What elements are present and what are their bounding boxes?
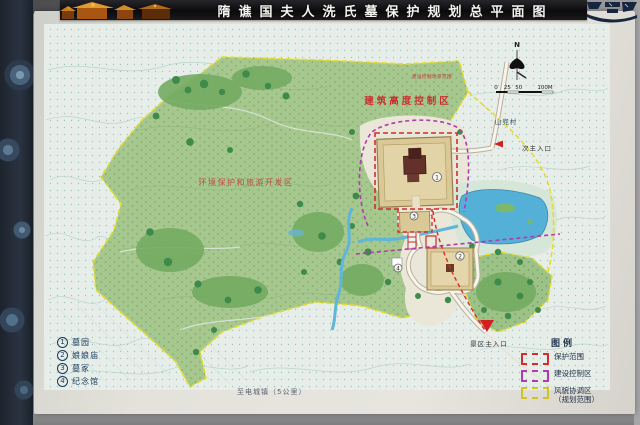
- scale-tick-0: 0: [494, 85, 498, 91]
- legend-item-coordination: 风貌协调区 （规划范围）: [521, 386, 629, 404]
- site-list-item: 4 纪念馆: [57, 376, 99, 387]
- marker-1: 1: [435, 175, 439, 182]
- main-entrance-label: 景区主入口: [470, 339, 508, 348]
- site-list-item: 2 娘娘庙: [57, 350, 99, 361]
- site-list-item: 1 墓园: [57, 337, 99, 348]
- protection-label: 保护范围: [554, 352, 584, 361]
- legend-item-construction: 建设控制区: [521, 369, 629, 382]
- scale-tick-100: 100M: [537, 85, 552, 91]
- site-list-legend: 1 墓园 2 娘娘庙 3 墓冢 4 纪念馆: [57, 337, 99, 389]
- site-number-3: 3: [57, 363, 68, 374]
- construction-label: 建设控制区: [554, 369, 592, 378]
- village-label: 山兜村: [495, 117, 518, 126]
- site-label-2: 娘娘庙: [72, 350, 99, 361]
- tomb-roof: [408, 148, 421, 159]
- coordination-swatch: [521, 387, 549, 399]
- site-list-item: 3 墓冢: [57, 363, 99, 374]
- coordination-label-line2: （规划范围）: [554, 395, 599, 404]
- pond: [288, 230, 304, 237]
- poster-title: 隋谯国夫人洗氏墓保护规划总平面图: [180, 1, 587, 20]
- to-town-label: 至电城镇（5公里）: [237, 387, 306, 397]
- lake-island: [495, 204, 515, 213]
- corner-logo-icon: [584, 0, 640, 26]
- scale-tick-25: 25: [504, 85, 511, 91]
- lake: [459, 190, 548, 244]
- site-number-2: 2: [57, 350, 68, 361]
- scale-tick-50: 50: [515, 85, 522, 91]
- site-label-1: 墓园: [72, 337, 90, 348]
- site-label-3: 墓冢: [72, 363, 90, 374]
- height-control-label: 建筑高度控制区: [363, 95, 452, 107]
- legend-title: 图例: [551, 336, 629, 349]
- palace-ornament-icon: [60, 0, 180, 20]
- control-zone-small-label: 建设控制地带范围: [412, 73, 452, 80]
- secondary-entrance-label: 次主入口: [522, 144, 552, 153]
- site-label-4: 纪念馆: [72, 376, 99, 387]
- north-label: N: [514, 41, 520, 49]
- legend-item-protection: 保护范围: [521, 352, 629, 365]
- lake-islet: [528, 220, 533, 225]
- env-tourism-label: 环境保护和旅游开发区: [199, 177, 294, 187]
- construction-swatch: [521, 370, 549, 382]
- tomb-porch: [407, 174, 419, 182]
- marker-2: 2: [458, 254, 462, 261]
- coordination-label: 风貌协调区 （规划范围）: [554, 386, 599, 404]
- coordination-label-line1: 风貌协调区: [554, 386, 592, 395]
- protection-swatch: [521, 353, 549, 365]
- zone-legend: 图例 保护范围 建设控制区 风貌协调区 （规划范围）: [521, 336, 629, 408]
- site-number-1: 1: [57, 337, 68, 348]
- marker-3: 3: [412, 214, 416, 221]
- title-banner: 隋谯国夫人洗氏墓保护规划总平面图: [60, 0, 587, 20]
- site-number-4: 4: [57, 376, 68, 387]
- marker-4: 4: [396, 266, 400, 273]
